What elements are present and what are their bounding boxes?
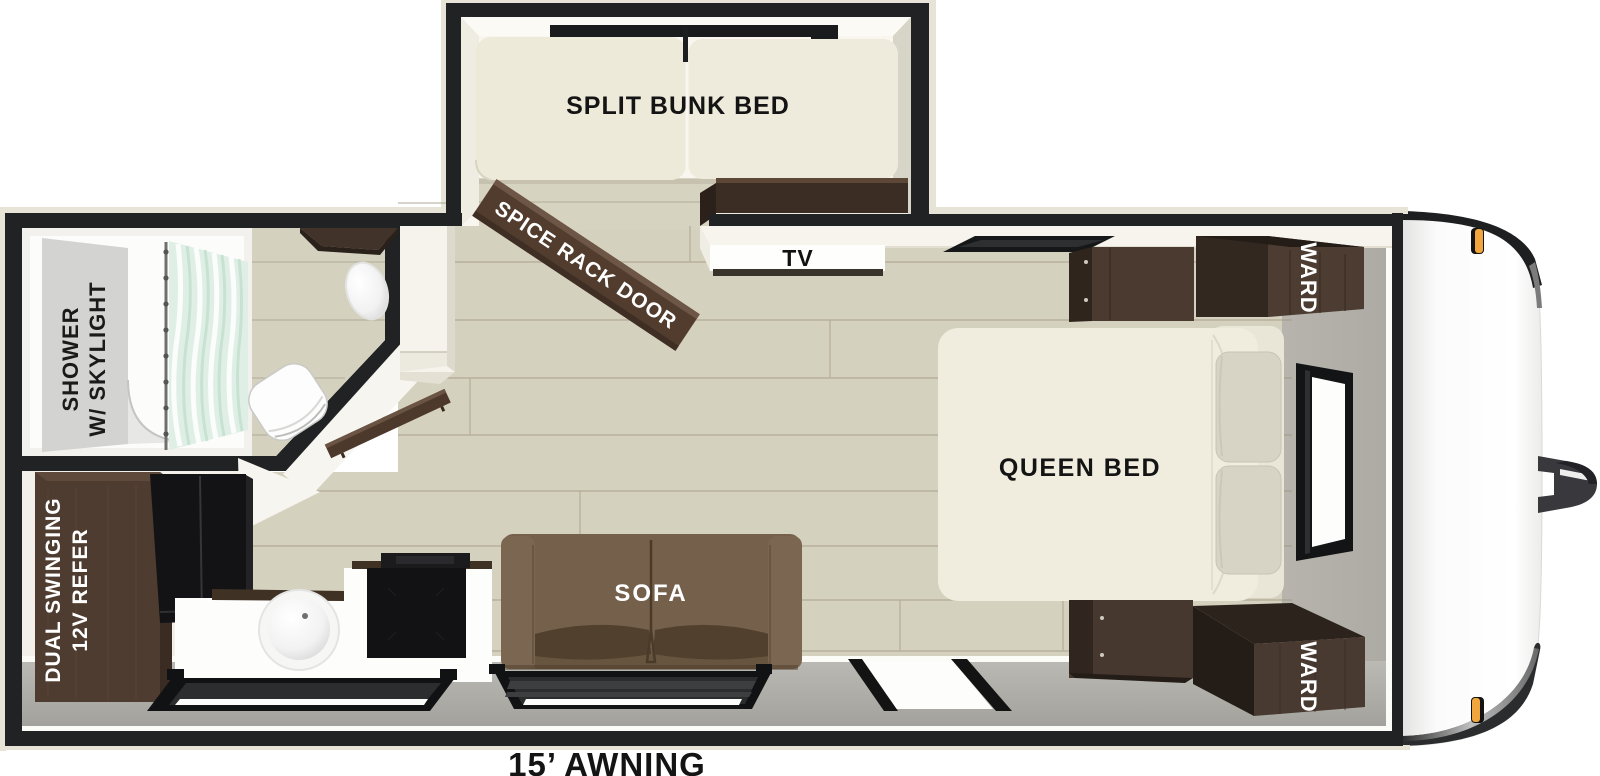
svg-text:QUEEN BED: QUEEN BED bbox=[999, 454, 1161, 482]
svg-text:WARD: WARD bbox=[1296, 242, 1321, 313]
svg-text:SPLIT BUNK BED: SPLIT BUNK BED bbox=[566, 92, 790, 120]
svg-text:TV: TV bbox=[782, 245, 813, 271]
svg-text:SOFA: SOFA bbox=[614, 580, 687, 607]
svg-text:WARD: WARD bbox=[1296, 641, 1321, 712]
svg-text:12V REFER: 12V REFER bbox=[69, 528, 92, 651]
svg-text:DUAL SWINGING: DUAL SWINGING bbox=[42, 497, 65, 682]
svg-text:W/ SKYLIGHT: W/ SKYLIGHT bbox=[85, 281, 110, 436]
svg-text:15’ AWNING: 15’ AWNING bbox=[508, 746, 706, 776]
svg-text:SHOWER: SHOWER bbox=[58, 307, 83, 412]
